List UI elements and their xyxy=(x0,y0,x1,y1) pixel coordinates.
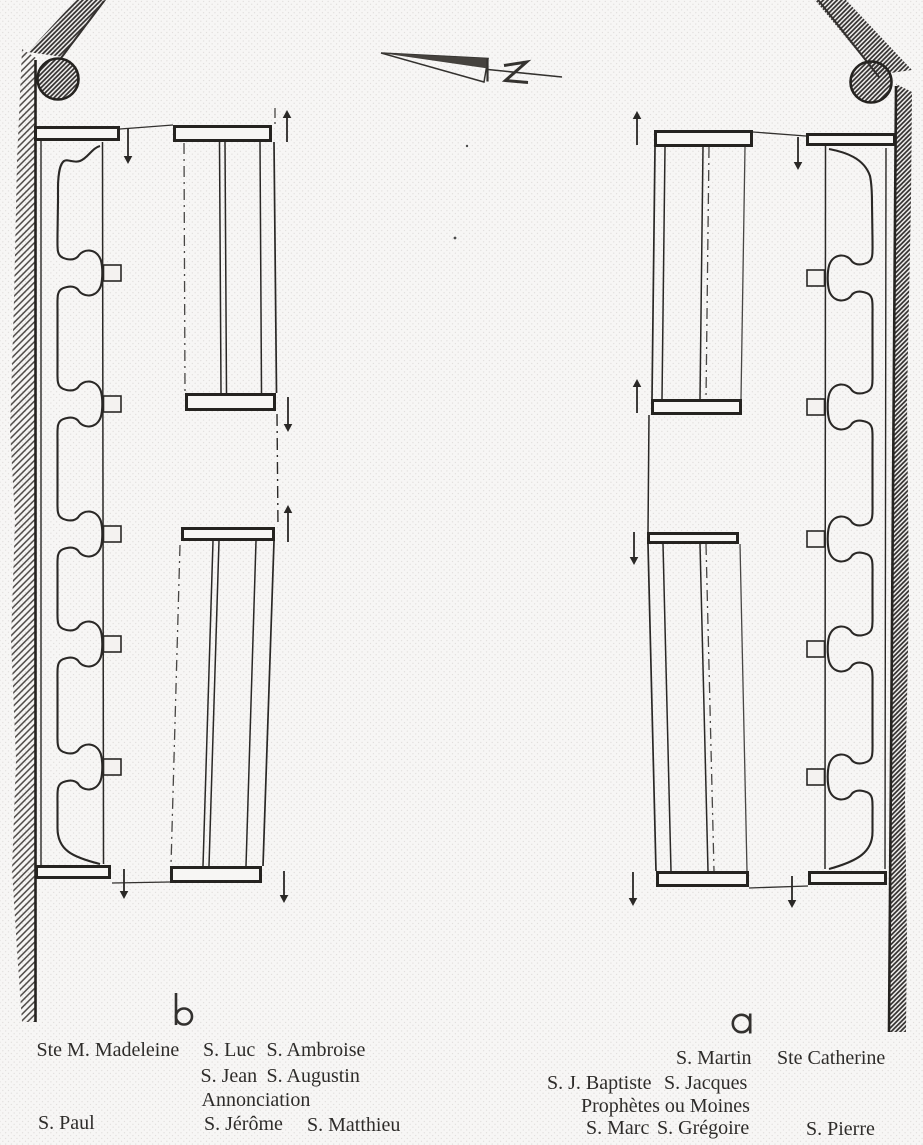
svg-text:S. J. Baptiste: S. J. Baptiste xyxy=(547,1072,652,1094)
svg-text:S. Augustin: S. Augustin xyxy=(267,1065,360,1087)
svg-text:S. Jacques: S. Jacques xyxy=(664,1072,748,1094)
svg-text:S. Jean: S. Jean xyxy=(201,1065,258,1087)
svg-text:S. Matthieu: S. Matthieu xyxy=(307,1114,400,1136)
svg-text:S. Jérôme: S. Jérôme xyxy=(204,1113,283,1135)
svg-text:S. Martin: S. Martin xyxy=(676,1047,752,1069)
svg-text:S. Paul: S. Paul xyxy=(38,1112,95,1134)
svg-text:Annonciation: Annonciation xyxy=(202,1089,311,1111)
svg-text:Ste Catherine: Ste Catherine xyxy=(777,1047,885,1069)
svg-text:Prophètes ou Moines: Prophètes ou Moines xyxy=(581,1095,750,1117)
svg-text:S. Marc: S. Marc xyxy=(586,1117,649,1139)
svg-text:S. Grégoire: S. Grégoire xyxy=(657,1117,749,1139)
svg-text:S. Luc: S. Luc xyxy=(203,1039,255,1061)
svg-text:S. Ambroise: S. Ambroise xyxy=(267,1039,366,1061)
svg-text:S. Pierre: S. Pierre xyxy=(806,1118,875,1140)
svg-text:Ste M. Madeleine: Ste M. Madeleine xyxy=(37,1039,180,1061)
